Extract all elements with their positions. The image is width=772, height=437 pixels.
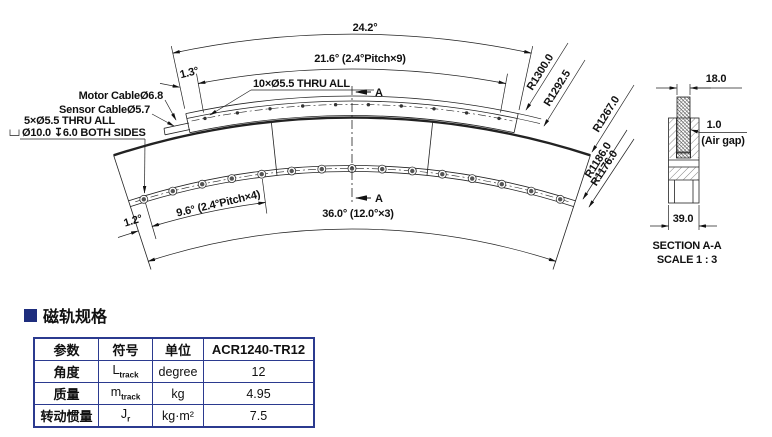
symbol-base: m — [111, 385, 121, 399]
section-letter-top: A — [375, 87, 383, 99]
table-row: 质量 mtrack kg 4.95 — [34, 383, 314, 405]
section-dim-airgap: 1.0 — [707, 119, 722, 131]
cable-exit — [164, 123, 190, 135]
section-magnet-blade — [677, 97, 690, 153]
datasheet-page: 24.2° 21.6° (2.4°Pitch×9) 1.3° 10×Ø5.5 T… — [0, 0, 772, 437]
counterbore-symbol — [10, 130, 19, 136]
dim-end-offset-bottom: 1.2° — [122, 213, 144, 230]
dim-total-angle: 24.2° — [353, 22, 378, 34]
section-letter-bottom: A — [375, 193, 383, 205]
col-header-parameter: 参数 — [34, 338, 99, 361]
dim-end-offset-top: 1.3° — [179, 65, 200, 81]
row-inertia-unit: kg·m² — [153, 405, 204, 428]
section-scale: SCALE 1 : 3 — [657, 254, 717, 266]
table-row: 角度 Ltrack degree 12 — [34, 361, 314, 383]
motor-band — [186, 96, 541, 133]
row-mass-param: 质量 — [34, 383, 99, 405]
table-row: 转动惯量 Jr kg·m² 7.5 — [34, 405, 314, 428]
section-title: SECTION A-A — [653, 240, 722, 252]
spec-title-text: 磁轨规格 — [43, 303, 107, 327]
col-header-unit: 单位 — [153, 338, 204, 361]
section-airgap-label: (Air gap) — [701, 135, 745, 147]
section-dim-width-bottom: 39.0 — [673, 213, 694, 225]
symbol-sub: r — [127, 415, 130, 424]
section-dim-width-top: 18.0 — [706, 73, 727, 85]
row-mass-value: 4.95 — [204, 383, 315, 405]
spec-table-header-row: 参数 符号 单位 ACR1240-TR12 — [34, 338, 314, 361]
row-inertia-symbol: Jr — [99, 405, 153, 428]
radius-label-r1292: R1292.5 — [542, 68, 574, 109]
symbol-sub: track — [119, 371, 138, 380]
title-bullet-square — [24, 309, 37, 322]
section-view — [650, 84, 747, 230]
note-motor-holes: 10×Ø5.5 THRU ALL — [253, 78, 350, 90]
track-spec-block: 磁轨规格 参数 符号 单位 ACR1240-TR12 角度 Ltrack deg… — [24, 306, 315, 428]
dim-track-total: 36.0° (12.0°×3) — [322, 208, 394, 220]
note-track-holes-1: 5×Ø5.5 THRU ALL — [24, 115, 116, 127]
dim-pitch-angle: 21.6° (2.4°Pitch×9) — [314, 53, 406, 65]
row-angle-param: 角度 — [34, 361, 99, 383]
col-header-symbol: 符号 — [99, 338, 153, 361]
symbol-sub: track — [121, 393, 140, 402]
row-angle-unit: degree — [153, 361, 204, 383]
note-motor-cable: Motor CableØ6.8 — [79, 90, 163, 102]
row-angle-value: 12 — [204, 361, 315, 383]
row-angle-symbol: Ltrack — [99, 361, 153, 383]
dim-track-pitch: 9.6° (2.4°Pitch×4) — [175, 188, 262, 219]
row-inertia-value: 7.5 — [204, 405, 315, 428]
row-mass-unit: kg — [153, 383, 204, 405]
spec-table: 参数 符号 单位 ACR1240-TR12 角度 Ltrack degree 1… — [33, 337, 315, 428]
col-header-model: ACR1240-TR12 — [204, 338, 315, 361]
row-mass-symbol: mtrack — [99, 383, 153, 405]
row-inertia-param: 转动惯量 — [34, 405, 99, 428]
spec-title: 磁轨规格 — [24, 306, 315, 324]
main-view-labels: 24.2° 21.6° (2.4°Pitch×9) 1.3° 10×Ø5.5 T… — [22, 22, 622, 230]
note-track-holes-2: Ø10.0 ↧6.0 BOTH SIDES — [22, 127, 146, 139]
